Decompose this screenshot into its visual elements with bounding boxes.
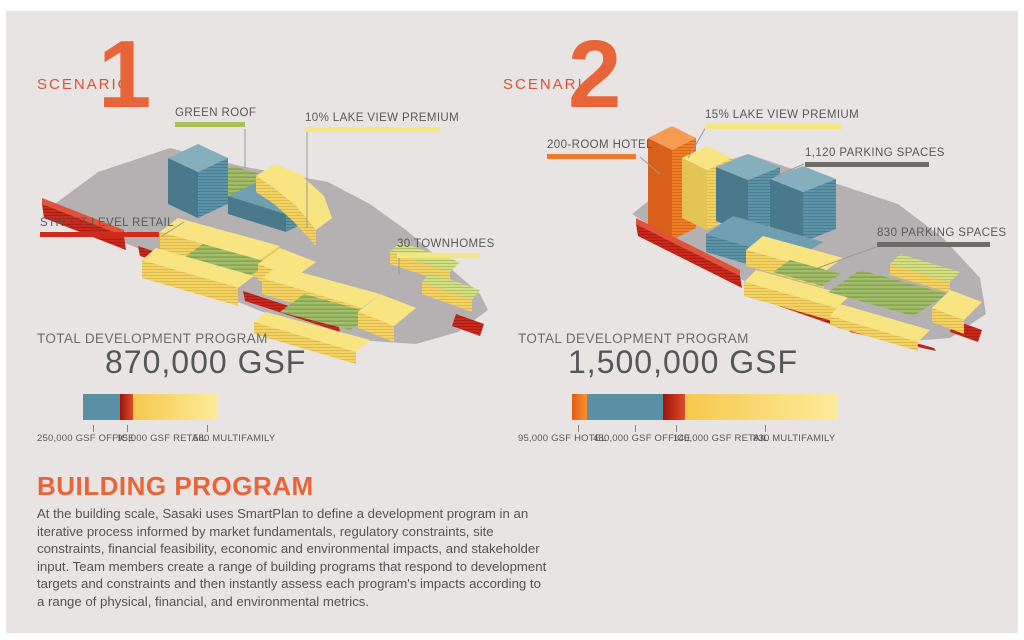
program-bar-1	[83, 394, 218, 420]
office-tower	[168, 144, 228, 218]
callout-street-retail-underline	[40, 232, 159, 237]
bar-segment-multifamily	[685, 394, 838, 420]
callout-lake-view-underline-2	[705, 124, 842, 129]
scenario-2-number: 2	[568, 26, 621, 124]
bar-caption-multifamily-2: 830 MULTIFAMILY	[753, 433, 835, 444]
callout-street-level-retail: STREET LEVEL RETAIL	[40, 217, 174, 229]
callout-green-roof-underline	[175, 122, 245, 127]
callout-parking-830-underline	[877, 242, 990, 247]
bar-segment-office	[587, 394, 663, 420]
bar-tick	[676, 425, 677, 432]
callout-green-roof: GREEN ROOF	[175, 107, 256, 119]
infographic-page: SCENARIO 1 SCENARIO 2	[0, 0, 1024, 640]
callout-hotel-underline	[547, 154, 636, 159]
callout-lake-view-premium-2: 15% LAKE VIEW PREMIUM	[705, 109, 859, 121]
scenario-1-number: 1	[98, 26, 151, 124]
bar-segment-retail	[120, 394, 133, 420]
callout-parking-830: 830 PARKING SPACES	[877, 227, 1007, 239]
program-bar-2	[572, 394, 838, 420]
bar-tick	[207, 425, 208, 432]
callout-townhomes-underline	[397, 253, 480, 258]
bar-segment-hotel	[572, 394, 587, 420]
bar-caption-multifamily-1: 580 MULTIFAMILY	[193, 433, 275, 444]
total-program-value-2: 1,500,000 GSF	[568, 344, 798, 381]
bar-segment-retail	[663, 394, 685, 420]
bar-tick	[765, 425, 766, 432]
callout-parking-1120: 1,120 PARKING SPACES	[805, 147, 945, 159]
callout-lake-view-premium: 10% LAKE VIEW PREMIUM	[305, 112, 459, 124]
bar-tick	[578, 425, 579, 432]
bar-tick	[93, 425, 94, 432]
bar-tick	[635, 425, 636, 432]
bar-segment-office	[83, 394, 120, 420]
callout-parking-1120-underline	[805, 162, 929, 167]
total-program-value-1: 870,000 GSF	[105, 344, 306, 381]
callout-lake-view-underline	[305, 127, 440, 132]
building-program-heading: BUILDING PROGRAM	[37, 471, 314, 502]
bar-tick	[127, 425, 128, 432]
callout-hotel: 200-ROOM HOTEL	[547, 139, 653, 151]
bar-segment-multifamily	[133, 394, 218, 420]
callout-townhomes: 30 TOWNHOMES	[397, 238, 495, 250]
building-program-body: At the building scale, Sasaki uses Smart…	[37, 505, 547, 611]
